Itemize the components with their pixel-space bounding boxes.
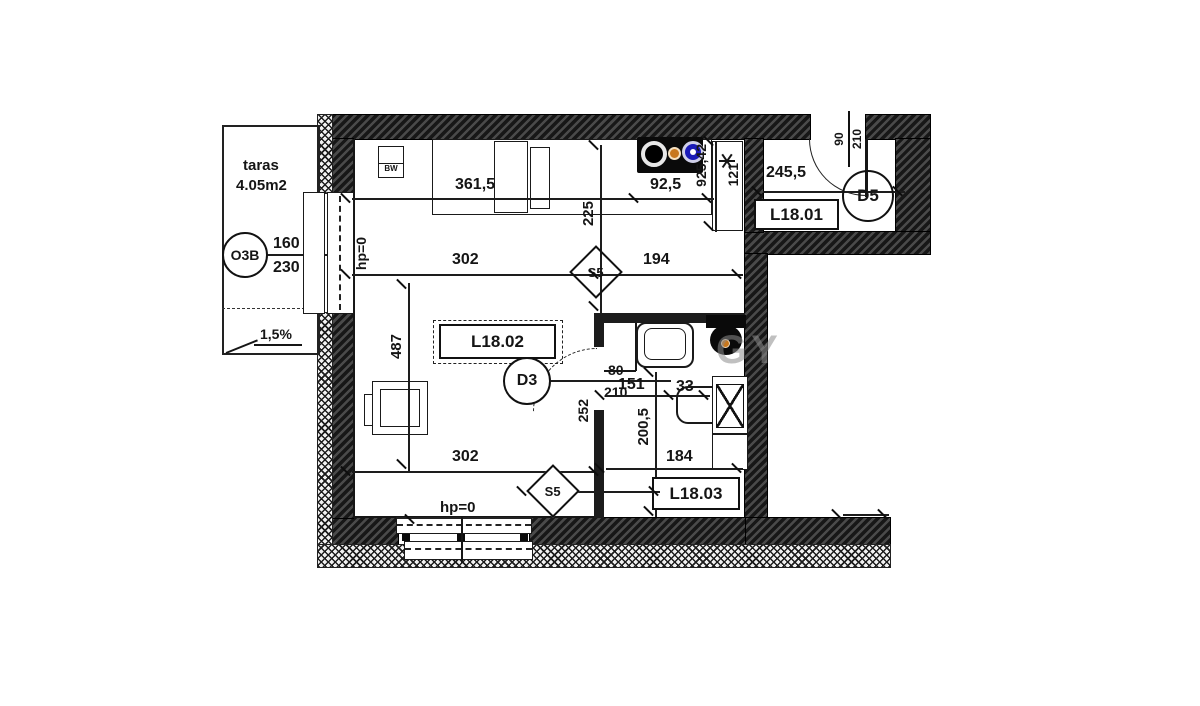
window-hinge-1 bbox=[402, 534, 410, 541]
furniture-cabinet-inner bbox=[380, 389, 420, 427]
insulation-left-lower bbox=[318, 313, 332, 567]
wall-right-upper bbox=[896, 139, 930, 235]
bath-cabinet bbox=[712, 434, 748, 470]
dim-shaft: 925,42 bbox=[694, 144, 708, 187]
wall-left-lower bbox=[332, 313, 353, 518]
dim-bath-depth: 200,5 bbox=[636, 408, 651, 446]
furniture-knob bbox=[364, 394, 373, 426]
wall-bottom-right bbox=[745, 518, 890, 545]
d3-door-tag: D3 bbox=[503, 357, 551, 405]
bath-id: L18.03 bbox=[670, 484, 723, 504]
watermark: GY bbox=[716, 328, 782, 373]
bath-dim-line-bottom bbox=[606, 468, 743, 470]
d5-height: 210 bbox=[851, 129, 865, 149]
bath-divider-h bbox=[604, 370, 636, 372]
kitchen-sink bbox=[494, 141, 528, 213]
bath-dim-line-top bbox=[606, 395, 710, 397]
hp-window-label: hp=0 bbox=[440, 500, 475, 515]
mid-dim-line bbox=[352, 274, 743, 276]
dim-living-width: 302 bbox=[452, 252, 479, 268]
balcony-door-centerline bbox=[339, 196, 341, 310]
washbasin-inner bbox=[644, 328, 686, 360]
dim-bath-width-top: 151 bbox=[618, 377, 645, 393]
bottom-dim-line bbox=[352, 471, 600, 473]
dim-living-width-bottom: 302 bbox=[452, 449, 479, 465]
wall-bath-left-stub bbox=[594, 313, 604, 347]
living-id: L18.02 bbox=[471, 332, 524, 352]
d5-door-tag: D5 bbox=[842, 170, 894, 222]
dim-bath-width: 184 bbox=[666, 449, 693, 465]
dim-kitchen-depth: 225 bbox=[581, 201, 596, 226]
bw-label: BW bbox=[379, 163, 403, 173]
v-dim-shaft-line bbox=[715, 141, 717, 232]
d3-label: D3 bbox=[517, 372, 537, 390]
washing-machine-cross bbox=[716, 384, 744, 428]
slope-underline bbox=[254, 344, 302, 346]
dim-wall-seg: 121 bbox=[726, 163, 740, 186]
dim-living-depth: 487 bbox=[389, 334, 404, 359]
window-mullion bbox=[461, 517, 463, 563]
window-inner bbox=[404, 541, 533, 560]
wall-hall-bottom bbox=[745, 232, 930, 254]
kitchen-dim-line bbox=[352, 198, 714, 200]
d5-size-fraction: 90 210 bbox=[833, 111, 891, 167]
tick-mark bbox=[396, 279, 407, 290]
terrace-name: taras bbox=[243, 158, 279, 173]
dim-kitchen-run: 361,5 bbox=[455, 177, 495, 193]
room-label-bath: L18.03 bbox=[652, 477, 740, 510]
window-outer bbox=[396, 517, 532, 534]
wall-bottom-left bbox=[332, 518, 398, 545]
v-dim-487-line bbox=[408, 283, 410, 471]
o3b-height: 230 bbox=[273, 260, 300, 276]
tick-mark bbox=[588, 301, 599, 312]
tick-mark bbox=[396, 459, 407, 470]
d3-leader-line bbox=[551, 380, 671, 382]
o3b-label: O3B bbox=[231, 247, 260, 263]
room-label-living: L18.02 bbox=[439, 324, 556, 359]
hp-door-label: hp=0 bbox=[354, 237, 368, 270]
dim-hall-width: 245,5 bbox=[766, 165, 806, 181]
hall-id: L18.01 bbox=[770, 205, 823, 225]
dim-bath-wall: 252 bbox=[576, 399, 590, 422]
window-hinge-3 bbox=[520, 534, 528, 541]
terrace-area: 4.05m2 bbox=[236, 178, 287, 193]
wall-bottom-mid bbox=[530, 518, 745, 545]
bw-unit: BW bbox=[378, 146, 404, 178]
wall-top bbox=[320, 115, 810, 139]
o3b-window-tag: O3B bbox=[222, 232, 268, 278]
balcony-door-frame bbox=[303, 192, 325, 314]
dim-hob-width: 92,5 bbox=[650, 177, 681, 193]
room-label-hall: L18.01 bbox=[754, 199, 839, 230]
wall-left-upper bbox=[332, 139, 353, 193]
hob-burner-black bbox=[641, 141, 667, 167]
insulation-left-upper bbox=[318, 115, 332, 193]
hob-burner-orange bbox=[668, 147, 681, 160]
dim-kitchen-width: 194 bbox=[643, 252, 670, 268]
wall-right-lower bbox=[745, 254, 767, 520]
s5-bottom-label: S5 bbox=[545, 484, 561, 499]
floor-plan: taras 4.05m2 1,5% O3B 160 230 hp=0 BW 90 bbox=[0, 0, 1200, 706]
o3b-width: 160 bbox=[273, 236, 300, 252]
d5-label: D5 bbox=[857, 186, 879, 206]
s5-marker-top: S5 bbox=[569, 245, 623, 299]
dim-bath-fixture: 33 bbox=[676, 379, 694, 395]
d5-width: 90 bbox=[833, 132, 847, 145]
terrace-slope: 1,5% bbox=[260, 327, 292, 341]
